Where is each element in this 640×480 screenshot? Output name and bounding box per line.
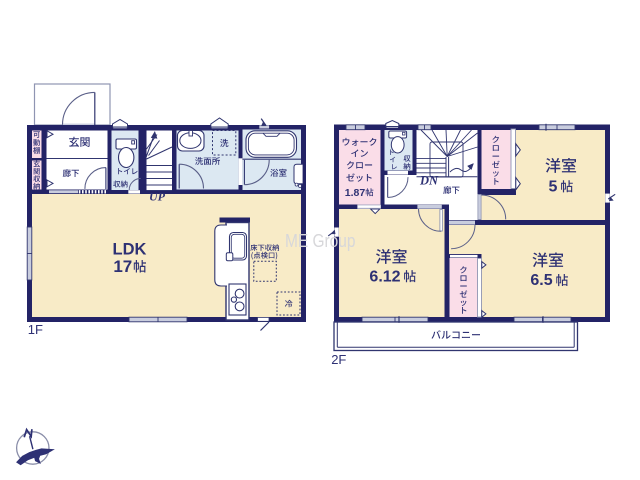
svg-text:1F: 1F bbox=[28, 322, 43, 337]
svg-text:5: 5 bbox=[549, 179, 558, 196]
svg-text:LDK: LDK bbox=[113, 241, 147, 259]
svg-text:UP: UP bbox=[149, 190, 166, 204]
svg-text:6.12: 6.12 bbox=[369, 268, 400, 285]
svg-text:17: 17 bbox=[113, 257, 132, 276]
svg-text:ME Group: ME Group bbox=[285, 231, 356, 251]
svg-text:1.87: 1.87 bbox=[345, 187, 366, 199]
svg-text:2F: 2F bbox=[331, 352, 346, 367]
svg-text:DN: DN bbox=[419, 174, 439, 188]
svg-text:6.5: 6.5 bbox=[530, 272, 552, 289]
